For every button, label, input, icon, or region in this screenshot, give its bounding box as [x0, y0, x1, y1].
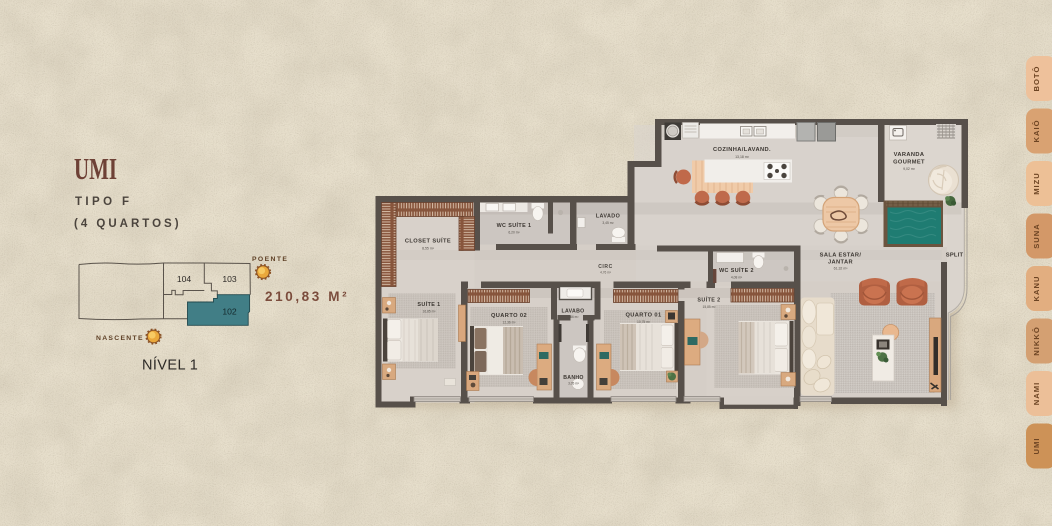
svg-text:KANU: KANU [1032, 276, 1041, 302]
svg-text:SUNA: SUNA [1032, 223, 1041, 249]
svg-text:210,83 M²: 210,83 M² [265, 289, 349, 304]
svg-text:6,20 m²: 6,20 m² [508, 231, 520, 235]
svg-text:13,18 m²: 13,18 m² [735, 155, 750, 159]
svg-text:12,36 m²: 12,36 m² [502, 321, 516, 325]
svg-text:POENTE: POENTE [252, 256, 288, 263]
svg-text:QUARTO 01: QUARTO 01 [625, 313, 661, 319]
svg-text:UMI: UMI [74, 151, 117, 186]
svg-text:3,45 m²: 3,45 m² [602, 221, 614, 225]
svg-text:15,85 m²: 15,85 m² [702, 305, 716, 309]
svg-text:104: 104 [177, 274, 192, 284]
svg-text:CLOSET SUÍTE: CLOSET SUÍTE [405, 237, 451, 245]
svg-text:8,55 m²: 8,55 m² [422, 247, 435, 251]
svg-text:SALA ESTAR/: SALA ESTAR/ [820, 253, 862, 259]
svg-text:VARANDA: VARANDA [894, 152, 925, 158]
svg-text:SUÍTE 2: SUÍTE 2 [697, 296, 720, 304]
svg-text:9,02 m²: 9,02 m² [903, 167, 916, 171]
svg-text:QUARTO 02: QUARTO 02 [491, 313, 527, 319]
svg-text:3,05 m²: 3,05 m² [568, 382, 579, 386]
svg-text:CIRC: CIRC [598, 264, 613, 270]
svg-text:10,75 m²: 10,75 m² [637, 320, 651, 324]
svg-text:TIPO F: TIPO F [75, 196, 132, 208]
svg-text:BOTÔ: BOTÔ [1032, 66, 1041, 92]
svg-text:NIKKÔ: NIKKÔ [1032, 326, 1041, 355]
svg-text:(4 QUARTOS): (4 QUARTOS) [74, 218, 182, 230]
svg-text:4,08 m²: 4,08 m² [731, 276, 743, 280]
svg-text:JANTAR: JANTAR [828, 260, 853, 266]
svg-text:LAVABO: LAVABO [562, 309, 585, 315]
svg-text:SUÍTE 1: SUÍTE 1 [417, 300, 440, 308]
svg-text:1,66 m²: 1,66 m² [568, 315, 579, 319]
svg-text:WC SUÍTE 1: WC SUÍTE 1 [497, 221, 532, 229]
svg-text:NAMI: NAMI [1032, 382, 1041, 405]
svg-text:4,76 m²: 4,76 m² [600, 271, 611, 275]
svg-text:UMI: UMI [1032, 438, 1041, 455]
svg-text:COZINHA/LAVAND.: COZINHA/LAVAND. [713, 147, 771, 153]
svg-text:NÍVEL 1: NÍVEL 1 [142, 357, 198, 374]
svg-text:SPLIT: SPLIT [946, 253, 964, 259]
svg-text:MIZU: MIZU [1032, 172, 1041, 195]
svg-text:BANHO: BANHO [563, 375, 584, 381]
svg-text:16,85 m²: 16,85 m² [422, 310, 436, 314]
svg-text:102: 102 [222, 307, 237, 317]
svg-text:103: 103 [222, 274, 237, 284]
svg-text:WC SUÍTE 2: WC SUÍTE 2 [719, 266, 754, 274]
svg-text:LAVADO: LAVADO [596, 214, 620, 220]
svg-text:NASCENTE: NASCENTE [96, 335, 144, 342]
svg-text:KAIÔ: KAIÔ [1032, 120, 1041, 143]
svg-text:61,32 m²: 61,32 m² [834, 267, 849, 271]
svg-text:GOURMET: GOURMET [893, 160, 925, 166]
